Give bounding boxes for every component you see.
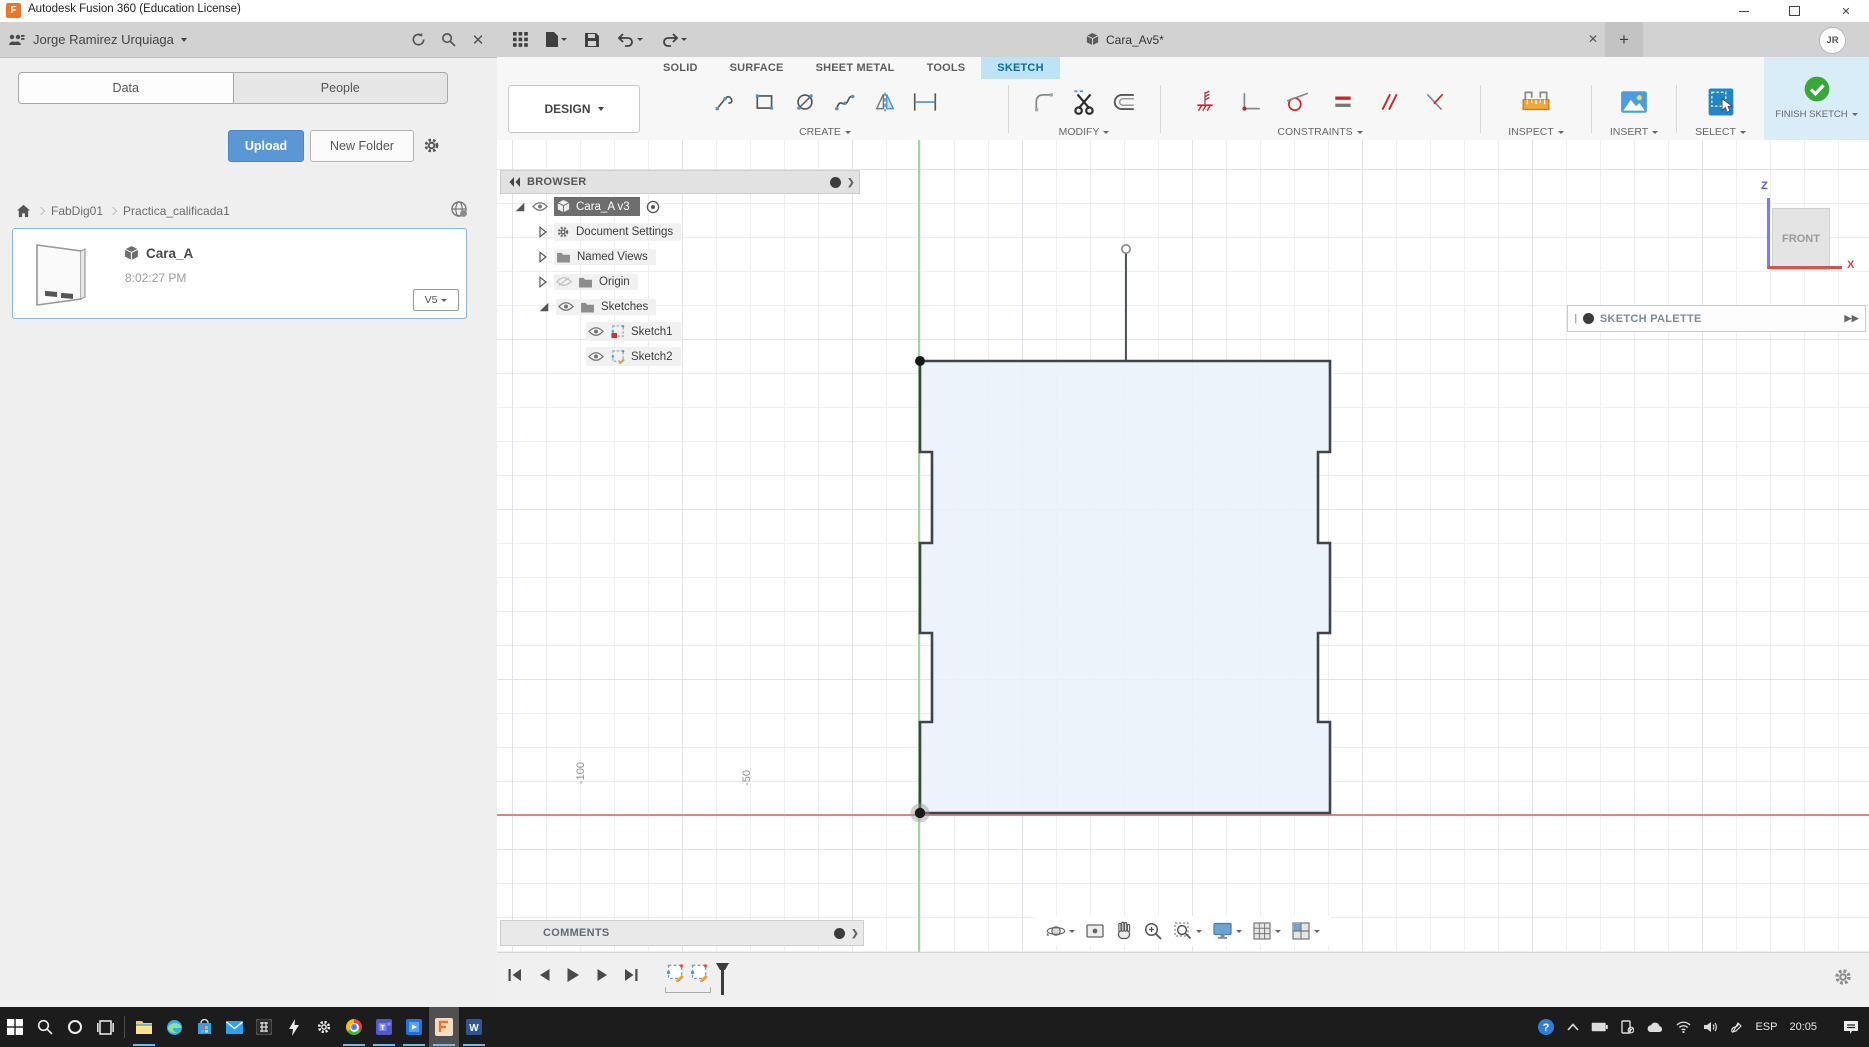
redo-button[interactable] xyxy=(653,22,695,57)
timeline-settings-button[interactable] xyxy=(1833,967,1853,987)
version-badge[interactable]: V5 xyxy=(413,289,459,311)
document-tab[interactable]: Cara_Av5* xyxy=(1085,22,1164,57)
taskbar-search-button[interactable] xyxy=(30,1007,60,1047)
chevron-down-icon xyxy=(845,131,851,134)
insert-image-button[interactable] xyxy=(1618,85,1650,119)
refresh-button[interactable] xyxy=(403,32,433,47)
maximize-icon xyxy=(1789,6,1800,16)
windows-taskbar: W ? xyxy=(0,1007,1869,1047)
app-launcher-button[interactable] xyxy=(505,22,535,57)
axis-tick-neg50: -50 xyxy=(741,770,753,786)
system-tray: ? ESP 20:05 xyxy=(1537,1018,1869,1036)
sketch-icon xyxy=(610,349,625,364)
tab-tools[interactable]: TOOLS xyxy=(911,57,982,79)
chevron-down-icon xyxy=(681,38,687,41)
device-icon[interactable] xyxy=(1620,1020,1634,1034)
skip-to-end-button[interactable] xyxy=(621,965,641,985)
settings-button[interactable] xyxy=(309,1007,339,1047)
root-component[interactable]: Cara_A v3 xyxy=(554,197,640,216)
home-icon[interactable] xyxy=(16,204,31,218)
circle-tool-button[interactable] xyxy=(789,85,821,119)
application-bar: Cara_Av5* ✕ + ? JR xyxy=(497,22,1869,58)
file-name[interactable]: Cara_A xyxy=(146,246,193,261)
select-group: SELECT xyxy=(1677,79,1764,140)
action-center-icon[interactable] xyxy=(1843,1020,1859,1035)
sketch-palette-bar[interactable]: ❘ SKETCH PALETTE ▶▶ xyxy=(1567,305,1866,332)
browser-tree: Cara_A v3 Document Settings Named Views xyxy=(500,194,750,369)
display-settings-button[interactable] xyxy=(1209,919,1245,943)
expand-closed-icon[interactable] xyxy=(538,226,548,238)
line-tool-button[interactable] xyxy=(709,85,741,119)
canvas-navigation-toolbar xyxy=(1035,916,1331,946)
close-button[interactable]: ✕ xyxy=(1828,0,1864,22)
sketch-point xyxy=(915,356,925,366)
fix-constraint-button[interactable] xyxy=(1189,85,1221,119)
chevron-down-icon xyxy=(1275,930,1281,933)
folder-icon xyxy=(556,251,571,263)
chevron-right-icon xyxy=(109,207,117,215)
search-button[interactable] xyxy=(433,32,463,47)
lightning-app-icon[interactable] xyxy=(279,1007,309,1047)
modeling-canvas[interactable]: -100 -50 BROWSER ❯ Cara_A v3 xyxy=(497,140,1869,952)
insert-group: INSERT xyxy=(1592,79,1676,140)
finish-sketch-dropdown[interactable]: FINISH SKETCH xyxy=(1775,107,1857,123)
chevron-down-icon xyxy=(1069,930,1075,933)
component-cube-icon xyxy=(556,199,571,214)
window-title: Autodesk Fusion 360 (Education License) xyxy=(28,3,241,15)
folder-icon xyxy=(578,276,593,288)
minimize-icon xyxy=(1739,11,1749,12)
pan-button[interactable] xyxy=(1112,919,1136,943)
timeline-sketch1-feature[interactable] xyxy=(665,963,684,982)
tree-label: Sketch1 xyxy=(631,326,673,338)
eye-icon[interactable] xyxy=(532,201,548,212)
workspace-selector-button[interactable]: DESIGN xyxy=(508,85,640,133)
panel-options-icon[interactable] xyxy=(830,177,841,188)
activate-component-icon[interactable] xyxy=(646,200,660,214)
fit-icon xyxy=(1173,921,1193,941)
new-tab-button[interactable]: + xyxy=(1605,22,1643,57)
volume-icon[interactable] xyxy=(1703,1021,1718,1033)
movies-tv-button[interactable] xyxy=(399,1007,429,1047)
timeline-bar xyxy=(497,952,1869,1008)
chevron-down-icon xyxy=(598,107,604,111)
save-button[interactable] xyxy=(577,22,607,57)
insert-dropdown[interactable]: INSERT xyxy=(1610,124,1658,140)
symmetry-constraint-button[interactable] xyxy=(1419,85,1451,119)
file-timestamp: 8:02:27 PM xyxy=(125,271,186,285)
chevron-down-icon xyxy=(1196,930,1202,933)
inspect-label: INSPECT xyxy=(1508,126,1554,138)
offset-icon xyxy=(1112,91,1136,113)
tab-solid[interactable]: SOLID xyxy=(647,57,714,79)
finish-sketch-check-icon xyxy=(1803,75,1831,103)
new-folder-button[interactable]: New Folder xyxy=(310,130,414,162)
settings-gear-button[interactable] xyxy=(422,136,441,155)
mirror-icon xyxy=(874,91,896,113)
battery-icon[interactable] xyxy=(1591,1022,1608,1032)
panel-options-icon[interactable] xyxy=(834,928,845,939)
tree-label: Document Settings xyxy=(576,226,673,238)
finish-sketch-button[interactable]: FINISH SKETCH xyxy=(1764,57,1869,140)
language-indicator[interactable]: ESP xyxy=(1755,1021,1777,1033)
file-menu-button[interactable] xyxy=(537,22,575,57)
constraints-group: CONSTRAINTS xyxy=(1161,79,1479,140)
select-icon xyxy=(1708,88,1734,116)
z-axis-label: Z xyxy=(1761,180,1768,192)
viewports-button[interactable] xyxy=(1288,919,1323,943)
onedrive-cloud-icon[interactable] xyxy=(1646,1022,1664,1033)
word-button[interactable]: W xyxy=(459,1007,489,1047)
comments-panel-header[interactable]: COMMENTS ❯ xyxy=(500,920,864,946)
eye-icon[interactable] xyxy=(558,301,574,312)
skip-to-start-button[interactable] xyxy=(505,965,525,985)
task-view-button[interactable] xyxy=(90,1007,120,1047)
chevron-down-icon xyxy=(1652,131,1658,134)
viewports-icon xyxy=(1291,921,1311,941)
fusion-logo-icon: F xyxy=(6,3,21,18)
tree-row-sketches[interactable]: Sketches xyxy=(500,294,750,319)
constraint-symmetry-icon xyxy=(1424,91,1446,113)
parallel-constraint-button[interactable] xyxy=(1373,85,1405,119)
timeline-playhead[interactable] xyxy=(715,963,730,995)
step-forward-button[interactable] xyxy=(592,965,612,985)
comments-title: COMMENTS xyxy=(543,927,610,939)
panel-expand-icon[interactable]: ❯ xyxy=(847,177,855,188)
redo-icon xyxy=(661,32,679,48)
maximize-button[interactable] xyxy=(1776,0,1812,22)
folder-icon xyxy=(580,301,595,313)
chevron-down-icon[interactable] xyxy=(181,38,187,42)
tree-row-sketch2[interactable]: Sketch2 xyxy=(500,344,750,369)
app-icon-dark[interactable] xyxy=(249,1007,279,1047)
timeline-playback-controls xyxy=(505,965,641,985)
version-label: V5 xyxy=(425,294,438,306)
palette-expand-icon[interactable]: ▶▶ xyxy=(1845,313,1859,324)
chevron-down-icon xyxy=(1852,113,1858,116)
tab-surface[interactable]: SURFACE xyxy=(714,57,800,79)
expand-closed-icon[interactable] xyxy=(538,251,548,263)
gear-icon xyxy=(556,225,570,239)
file-card[interactable]: Cara_A 8:02:27 PM V5 xyxy=(12,228,467,319)
fusion360-app-window: F Autodesk Fusion 360 (Education License… xyxy=(0,0,1869,1047)
ribbon-toolbar: SOLID SURFACE SHEET METAL TOOLS SKETCH D… xyxy=(497,57,1869,141)
svg-text:?: ? xyxy=(1543,1022,1550,1034)
modify-group: MODIFY xyxy=(1009,79,1159,140)
expand-closed-icon[interactable] xyxy=(538,276,548,288)
pan-hand-icon xyxy=(1115,921,1133,941)
timeline-group-bracket xyxy=(665,987,711,993)
file-explorer-button[interactable] xyxy=(129,1007,159,1047)
look-at-button[interactable] xyxy=(1082,920,1108,942)
component-cube-icon xyxy=(123,245,140,262)
offset-tool-button[interactable] xyxy=(1108,85,1140,119)
measure-icon xyxy=(1521,89,1551,115)
start-button[interactable] xyxy=(0,1007,30,1047)
pen-workspace-icon[interactable] xyxy=(1730,1021,1743,1034)
hidden-icons-chevron[interactable] xyxy=(1567,1023,1579,1031)
viewcube-front-face[interactable]: FRONT xyxy=(1772,208,1830,270)
constraint-tangent-icon xyxy=(1285,91,1309,113)
svg-text:W: W xyxy=(469,1023,479,1034)
chrome-icon xyxy=(346,1019,362,1035)
create-dropdown[interactable]: CREATE xyxy=(799,124,851,140)
mail-button[interactable] xyxy=(219,1007,249,1047)
line-endpoint xyxy=(1122,245,1130,253)
data-panel-header: Jorge Ramirez Urquiaga ✕ xyxy=(0,22,497,58)
chevron-down-icon xyxy=(561,38,567,41)
title-bar: F Autodesk Fusion 360 (Education License… xyxy=(0,0,1869,23)
tab-sketch[interactable]: SKETCH xyxy=(981,57,1059,79)
sketch-profile xyxy=(920,361,1330,813)
tree-label: Sketches xyxy=(601,301,648,313)
expand-open-icon[interactable] xyxy=(514,201,526,213)
tree-row-root[interactable]: Cara_A v3 xyxy=(500,194,750,219)
breadcrumb: FabDig01 Practica_calificada1 xyxy=(16,202,230,220)
taskbar-separator xyxy=(124,1016,125,1038)
rectangle-tool-button[interactable] xyxy=(749,85,781,119)
constraints-label: CONSTRAINTS xyxy=(1277,126,1352,138)
fillet-tool-button[interactable] xyxy=(1028,85,1060,119)
constraints-dropdown[interactable]: CONSTRAINTS xyxy=(1277,124,1362,140)
collapse-panel-icon xyxy=(509,177,521,187)
select-tool-button[interactable] xyxy=(1705,85,1737,119)
viewcube-x-axis xyxy=(1767,266,1842,269)
tree-label: Origin xyxy=(599,276,630,288)
tab-people[interactable]: People xyxy=(233,73,448,103)
help-tray-icon[interactable]: ? xyxy=(1537,1018,1555,1036)
trim-scissors-icon xyxy=(1071,88,1097,116)
constraint-perpendicular-icon xyxy=(1240,91,1262,113)
close-panel-button[interactable]: ✕ xyxy=(463,31,493,49)
perpendicular-constraint-button[interactable] xyxy=(1235,85,1267,119)
step-back-button[interactable] xyxy=(534,965,554,985)
dimension-icon xyxy=(912,91,938,113)
palette-gear-icon xyxy=(1583,313,1594,324)
orbit-button[interactable] xyxy=(1043,919,1078,943)
viewcube-z-axis xyxy=(1767,198,1770,268)
insert-label: INSERT xyxy=(1610,126,1648,138)
panel-expand-icon[interactable]: ❯ xyxy=(851,928,859,939)
tree-label: Sketch2 xyxy=(631,351,673,363)
inspect-group: INSPECT xyxy=(1481,79,1591,140)
trim-tool-button[interactable] xyxy=(1068,85,1100,119)
fusion360-taskbar-button[interactable] xyxy=(429,1007,459,1047)
expand-open-icon[interactable] xyxy=(538,301,550,313)
circle-icon xyxy=(794,91,816,113)
file-thumbnail xyxy=(23,237,99,311)
undo-icon xyxy=(617,32,635,48)
spline-icon xyxy=(834,91,856,113)
upload-button[interactable]: Upload xyxy=(228,130,304,162)
breadcrumb-project[interactable]: FabDig01 xyxy=(51,204,103,218)
line-icon xyxy=(714,91,736,113)
origin-point xyxy=(915,808,925,818)
root-component-label: Cara_A v3 xyxy=(576,201,630,213)
fit-button[interactable] xyxy=(1170,919,1205,943)
edge-button[interactable] xyxy=(159,1007,189,1047)
undo-button[interactable] xyxy=(609,22,651,57)
play-button[interactable] xyxy=(563,965,583,985)
eye-icon[interactable] xyxy=(588,326,604,337)
chevron-down-icon xyxy=(441,299,447,302)
sketch-dimension-tool-button[interactable] xyxy=(909,85,941,119)
workspace-label: DESIGN xyxy=(544,102,590,116)
tree-row-document-settings[interactable]: Document Settings xyxy=(500,219,750,244)
constraint-fix-icon xyxy=(1195,90,1215,114)
cortana-button[interactable] xyxy=(60,1007,90,1047)
component-cube-icon xyxy=(1085,32,1100,47)
data-people-tabs: Data People xyxy=(18,72,448,104)
timeline-sketch2-feature[interactable] xyxy=(689,963,708,982)
select-label: SELECT xyxy=(1695,126,1736,138)
team-name[interactable]: Jorge Ramirez Urquiaga xyxy=(33,32,174,47)
chevron-down-icon xyxy=(1314,930,1320,933)
finish-sketch-label: FINISH SKETCH xyxy=(1775,109,1847,120)
create-group: CREATE xyxy=(643,79,1007,140)
tab-data[interactable]: Data xyxy=(19,73,233,103)
image-icon xyxy=(1620,90,1648,114)
modify-dropdown[interactable]: MODIFY xyxy=(1059,124,1110,140)
team-icon xyxy=(8,33,25,46)
fillet-icon xyxy=(1033,91,1055,113)
sketch-palette-title: SKETCH PALETTE xyxy=(1600,313,1702,325)
tab-sheet-metal[interactable]: SHEET METAL xyxy=(800,57,911,79)
file-icon xyxy=(545,31,559,48)
chevron-down-icon xyxy=(1357,131,1363,134)
grid-layout-button[interactable] xyxy=(1249,919,1284,943)
inspect-dropdown[interactable]: INSPECT xyxy=(1508,124,1564,140)
chevron-down-icon xyxy=(1740,131,1746,134)
ribbon-tabs: SOLID SURFACE SHEET METAL TOOLS SKETCH xyxy=(647,57,1060,79)
clock[interactable]: 20:05 xyxy=(1789,1021,1817,1033)
document-tab-label: Cara_Av5* xyxy=(1106,33,1164,47)
data-panel: Jorge Ramirez Urquiaga ✕ Data People Upl… xyxy=(0,22,498,1007)
browser-title: BROWSER xyxy=(527,176,587,188)
orbit-icon xyxy=(1046,921,1066,941)
teams-button[interactable] xyxy=(369,1007,399,1047)
store-button[interactable] xyxy=(189,1007,219,1047)
chevron-right-icon xyxy=(37,207,45,215)
x-axis-label: X xyxy=(1847,259,1854,271)
display-settings-icon xyxy=(1212,921,1233,941)
constraint-equal-icon xyxy=(1332,91,1354,113)
browser-header[interactable]: BROWSER ❯ xyxy=(500,170,860,194)
select-dropdown[interactable]: SELECT xyxy=(1695,124,1746,140)
close-icon: ✕ xyxy=(1841,5,1850,18)
look-at-icon xyxy=(1085,922,1105,940)
tree-row-origin[interactable]: Origin xyxy=(500,269,750,294)
tree-label: Named Views xyxy=(577,251,648,263)
wifi-icon[interactable] xyxy=(1676,1021,1691,1033)
chevron-down-icon xyxy=(1103,131,1109,134)
close-tab-button[interactable]: ✕ xyxy=(1583,29,1603,49)
tangent-constraint-button[interactable] xyxy=(1281,85,1313,119)
grid-icon xyxy=(1252,921,1272,941)
constraint-parallel-icon xyxy=(1378,91,1400,113)
user-avatar[interactable]: JR xyxy=(1819,27,1846,54)
tree-row-named-views[interactable]: Named Views xyxy=(500,244,750,269)
mirror-tool-button[interactable] xyxy=(869,85,901,119)
eye-icon[interactable] xyxy=(588,351,604,362)
zoom-icon xyxy=(1143,921,1163,941)
chevron-down-icon xyxy=(1236,930,1242,933)
sync-status-icon[interactable] xyxy=(450,200,468,218)
create-label: CREATE xyxy=(799,126,841,138)
palette-handle-icon: ❘ xyxy=(1572,313,1580,324)
chevron-down-icon xyxy=(1558,131,1564,134)
chevron-down-icon xyxy=(637,38,643,41)
rectangle-icon xyxy=(754,91,776,113)
measure-tool-button[interactable] xyxy=(1520,85,1552,119)
axis-tick-neg100: -100 xyxy=(575,762,587,784)
modify-label: MODIFY xyxy=(1059,126,1100,138)
tree-row-sketch1[interactable]: Sketch1 xyxy=(500,319,750,344)
zoom-button[interactable] xyxy=(1140,919,1166,943)
chrome-button[interactable] xyxy=(339,1007,369,1047)
sketch-locked-icon xyxy=(610,324,625,339)
eye-off-icon[interactable] xyxy=(556,276,572,287)
spline-tool-button[interactable] xyxy=(829,85,861,119)
minimize-button[interactable] xyxy=(1726,0,1762,22)
breadcrumb-folder[interactable]: Practica_calificada1 xyxy=(123,204,230,218)
equal-constraint-button[interactable] xyxy=(1327,85,1359,119)
